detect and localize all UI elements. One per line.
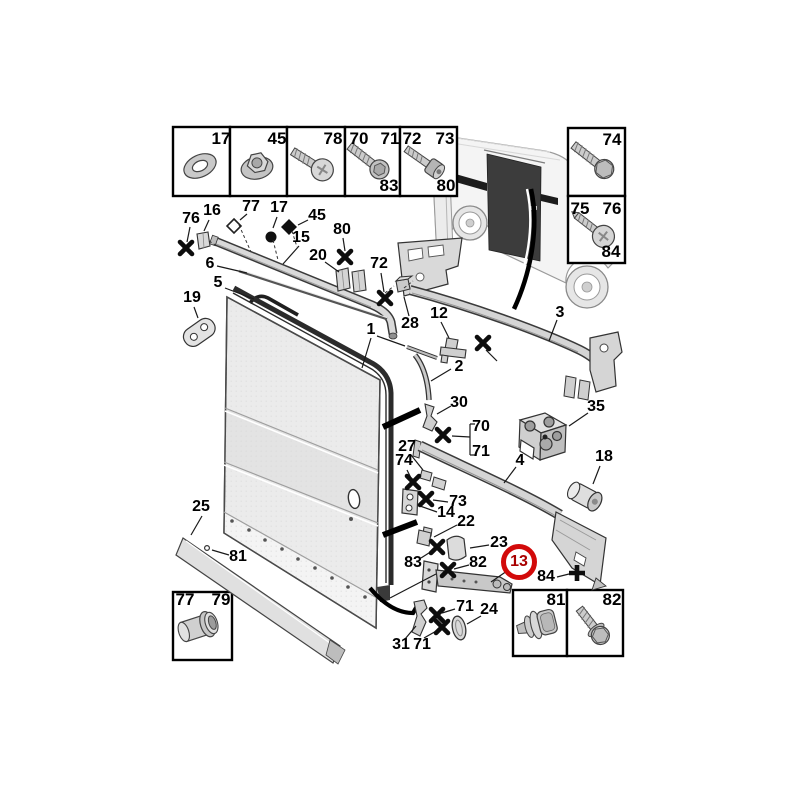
legend-label-71: 71 [381,129,400,149]
legend-label-17: 17 [212,129,231,149]
legend-label-83: 83 [380,176,399,196]
legend-label-74: 74 [603,130,622,150]
callout-18: 18 [595,448,613,466]
legend-label-78: 78 [324,129,343,149]
block-14 [402,489,418,515]
callout-3: 3 [556,304,565,322]
callout-22: 22 [457,513,475,531]
callout-2: 2 [455,358,464,376]
callout-84: 84 [537,568,555,586]
legend-label-76: 76 [603,199,622,219]
callout-71: 71 [472,443,490,461]
callout-80: 80 [333,221,351,239]
cover-23 [447,536,466,560]
roller-assembly-35 [519,413,566,460]
legend-label-77: 77 [176,590,195,610]
legend-label-70: 70 [350,129,369,149]
legend-label-80: 80 [437,176,456,196]
callout-6: 6 [206,255,215,273]
bracket-22 [417,527,432,546]
callout-71c: 71 [413,636,431,654]
van-rear-wheel [453,206,487,240]
callout-72: 72 [370,255,388,273]
callout-24: 24 [480,601,498,619]
door-panel [224,297,380,628]
plug-24 [450,615,468,641]
callout-16: 16 [203,202,221,220]
callout-28: 28 [401,315,419,333]
bumper-18 [565,479,605,513]
legend-label-84: 84 [602,242,621,262]
callout-76: 76 [182,210,200,228]
legend-label-45: 45 [268,129,287,149]
callout-14: 14 [437,504,455,522]
callout-70: 70 [472,418,490,436]
callout-31: 31 [392,636,410,654]
callout-19: 19 [183,289,201,307]
legend-label-81: 81 [547,590,566,610]
callout-4: 4 [516,452,525,470]
callout-77: 77 [242,198,260,216]
callout-71b: 71 [456,598,474,616]
plate-19 [180,315,219,350]
legend-label-73: 73 [436,129,455,149]
callout-30: 30 [450,394,468,412]
diagram-artwork [0,0,800,800]
callout-74: 74 [395,452,413,470]
callout-1: 1 [367,321,376,339]
callout-81: 81 [229,548,247,566]
callout-25: 25 [192,498,210,516]
legend-label-82: 82 [603,590,622,610]
molding-clip-hole [205,546,210,551]
callout-12: 12 [430,305,448,323]
legend-label-75: 75 [571,199,590,219]
bracket-30 [423,404,437,431]
legend-label-72: 72 [403,129,422,149]
callout-35: 35 [587,398,605,416]
callout-20: 20 [309,247,327,265]
callout-83: 83 [404,554,422,572]
callout-17: 17 [270,199,288,217]
legend-label-79: 79 [212,590,231,610]
bracket-31 [412,600,427,636]
grommet-17 [266,232,277,243]
van-front-wheel [566,266,608,308]
callout-23: 23 [490,534,508,552]
callout-45: 45 [308,207,326,225]
callout-15: 15 [292,229,310,247]
callout-13-highlighted: 13 [510,553,528,571]
callout-5: 5 [214,274,223,292]
striker-20 [336,268,366,292]
callout-82: 82 [469,554,487,572]
clips-27 [420,470,446,490]
parts-diagram: 17 45 78 70 71 83 72 73 80 74 75 76 84 7… [0,0,800,800]
